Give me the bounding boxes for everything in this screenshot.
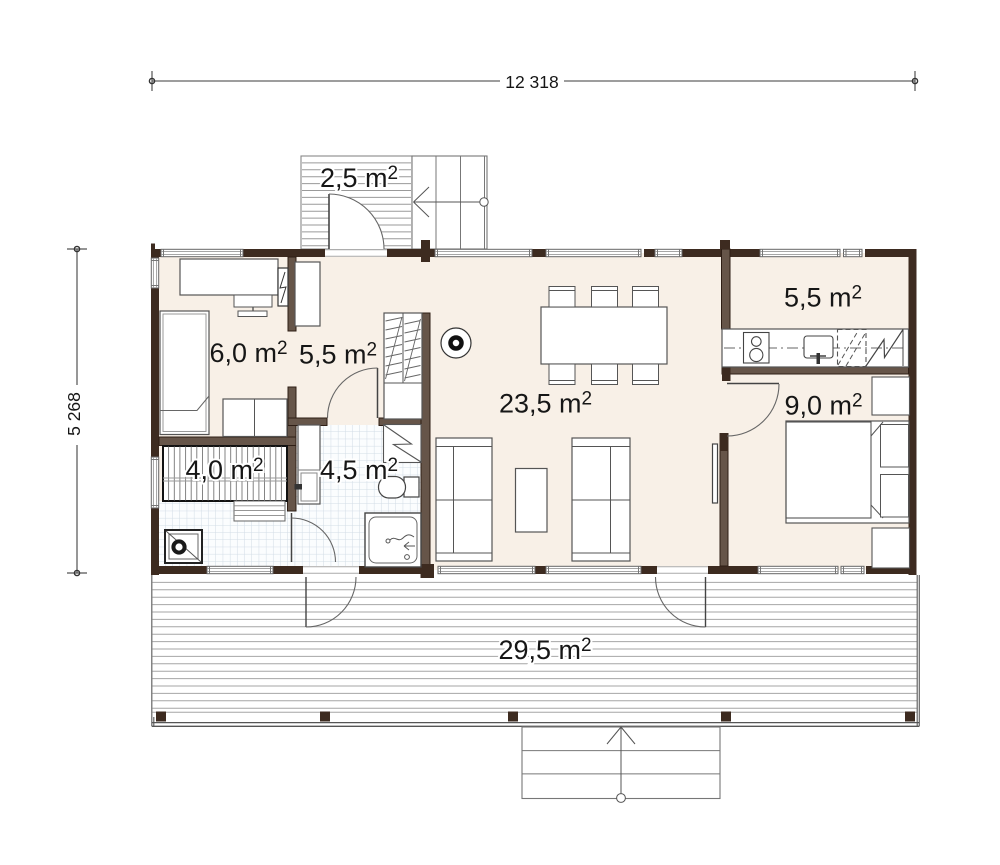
svg-text:4,5 m2: 4,5 m2 — [320, 455, 398, 485]
svg-text:5,5 m2: 5,5 m2 — [784, 283, 862, 313]
svg-text:12 318: 12 318 — [505, 72, 559, 92]
svg-text:29,5 m2: 29,5 m2 — [498, 635, 591, 665]
svg-text:9,0 m2: 9,0 m2 — [784, 391, 862, 421]
svg-text:2,5 m2: 2,5 m2 — [320, 163, 398, 193]
svg-text:5,5 m2: 5,5 m2 — [299, 340, 377, 370]
svg-text:23,5 m2: 23,5 m2 — [499, 389, 592, 419]
svg-text:6,0 m2: 6,0 m2 — [209, 338, 287, 368]
svg-text:4,0 m2: 4,0 m2 — [185, 455, 263, 485]
svg-text:5 268: 5 268 — [64, 392, 84, 436]
